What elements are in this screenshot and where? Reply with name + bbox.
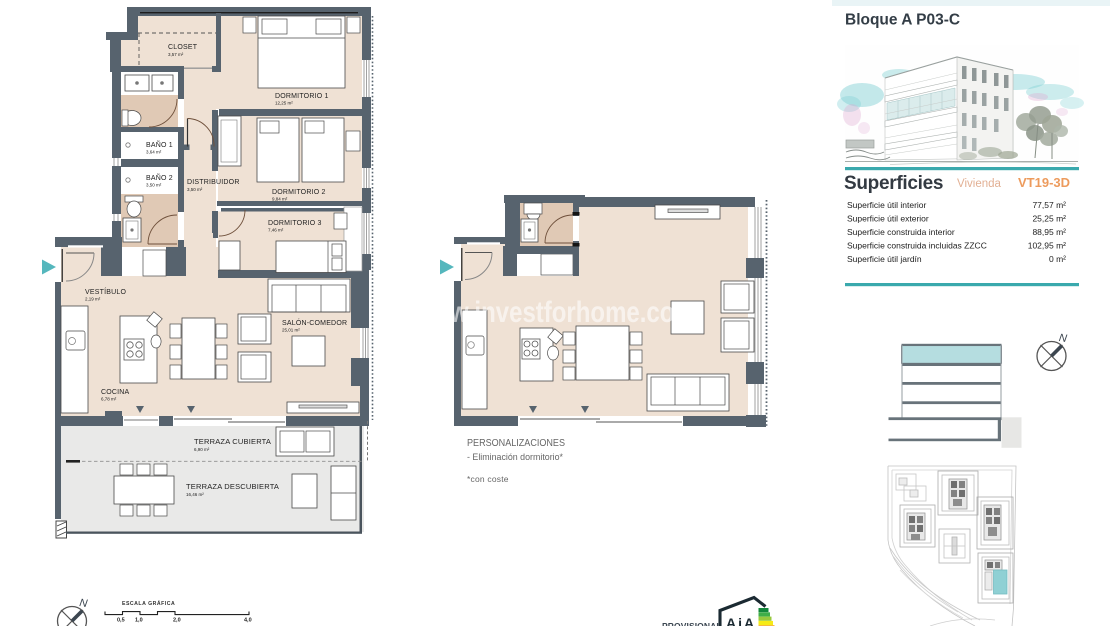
svg-text:0,5: 0,5 — [117, 618, 125, 624]
svg-text:VESTÍBULO: VESTÍBULO — [85, 287, 126, 296]
svg-text:Superficie útil exterior: Superficie útil exterior — [847, 214, 929, 224]
svg-text:12,25 m²: 12,25 m² — [275, 101, 293, 106]
svg-text:7,46 m²: 7,46 m² — [268, 228, 284, 233]
svg-text:DORMITORIO 1: DORMITORIO 1 — [275, 93, 329, 100]
svg-text:1,0: 1,0 — [135, 618, 143, 624]
svg-text:BAÑO 2: BAÑO 2 — [146, 173, 173, 182]
svg-text:2,0: 2,0 — [173, 618, 181, 624]
svg-text:SALÓN-COMEDOR: SALÓN-COMEDOR — [282, 318, 347, 327]
svg-text:Superficie construida interior: Superficie construida interior — [847, 227, 955, 237]
svg-text:TERRAZA DESCUBIERTA: TERRAZA DESCUBIERTA — [186, 482, 279, 491]
svg-text:3,50 m²: 3,50 m² — [187, 187, 203, 192]
svg-text:- Eliminación dormitorio*: - Eliminación dormitorio* — [467, 452, 563, 463]
svg-text:PROVISIONAL: PROVISIONAL — [662, 621, 722, 626]
svg-text:77,57 m²: 77,57 m² — [1032, 200, 1066, 210]
svg-text:Superficies: Superficies — [844, 173, 943, 194]
svg-text:Vivienda: Vivienda — [957, 178, 1002, 190]
svg-text:9,84 m²: 9,84 m² — [272, 197, 288, 202]
svg-text:COCINA: COCINA — [101, 389, 130, 396]
svg-text:CLOSET: CLOSET — [168, 44, 198, 51]
svg-text:w.investforhome.co: w.investforhome.co — [449, 294, 674, 328]
svg-text:PERSONALIZACIONES: PERSONALIZACIONES — [467, 438, 565, 449]
svg-text:16,46 m²: 16,46 m² — [186, 492, 204, 497]
svg-text:*con coste: *con coste — [467, 474, 509, 484]
svg-text:DORMITORIO 3: DORMITORIO 3 — [268, 220, 322, 227]
svg-text:Superficie construida incluida: Superficie construida incluidas ZZCC — [847, 241, 987, 251]
svg-text:102,95 m²: 102,95 m² — [1028, 241, 1066, 251]
svg-text:6,90 m²: 6,90 m² — [194, 447, 210, 452]
svg-text:3,50 m²: 3,50 m² — [146, 183, 162, 188]
svg-text:3,64 m²: 3,64 m² — [146, 150, 162, 155]
svg-text:DORMITORIO 2: DORMITORIO 2 — [272, 189, 326, 196]
svg-text:TERRAZA CUBIERTA: TERRAZA CUBIERTA — [194, 437, 271, 446]
svg-text:3,57 m²: 3,57 m² — [168, 52, 184, 57]
svg-text:6,78 m²: 6,78 m² — [101, 397, 117, 402]
svg-text:Superficie útil interior: Superficie útil interior — [847, 200, 927, 210]
svg-text:4,0: 4,0 — [244, 618, 252, 624]
svg-text:BAÑO 1: BAÑO 1 — [146, 140, 173, 149]
svg-text:ESCALA GRÁFICA: ESCALA GRÁFICA — [122, 600, 175, 607]
svg-text:AiA: AiA — [726, 615, 756, 626]
svg-text:Superficie útil jardín: Superficie útil jardín — [847, 254, 922, 264]
svg-text:25,25 m²: 25,25 m² — [1032, 214, 1066, 224]
svg-text:2,19 m²: 2,19 m² — [85, 297, 101, 302]
svg-text:Bloque A P03-C: Bloque A P03-C — [845, 12, 960, 29]
svg-text:88,95 m²: 88,95 m² — [1032, 227, 1066, 237]
svg-text:DISTRIBUIDOR: DISTRIBUIDOR — [187, 179, 240, 186]
svg-text:VT19-3D: VT19-3D — [1018, 175, 1070, 190]
svg-text:0 m²: 0 m² — [1049, 254, 1066, 264]
svg-text:25,01 m²: 25,01 m² — [282, 328, 300, 333]
